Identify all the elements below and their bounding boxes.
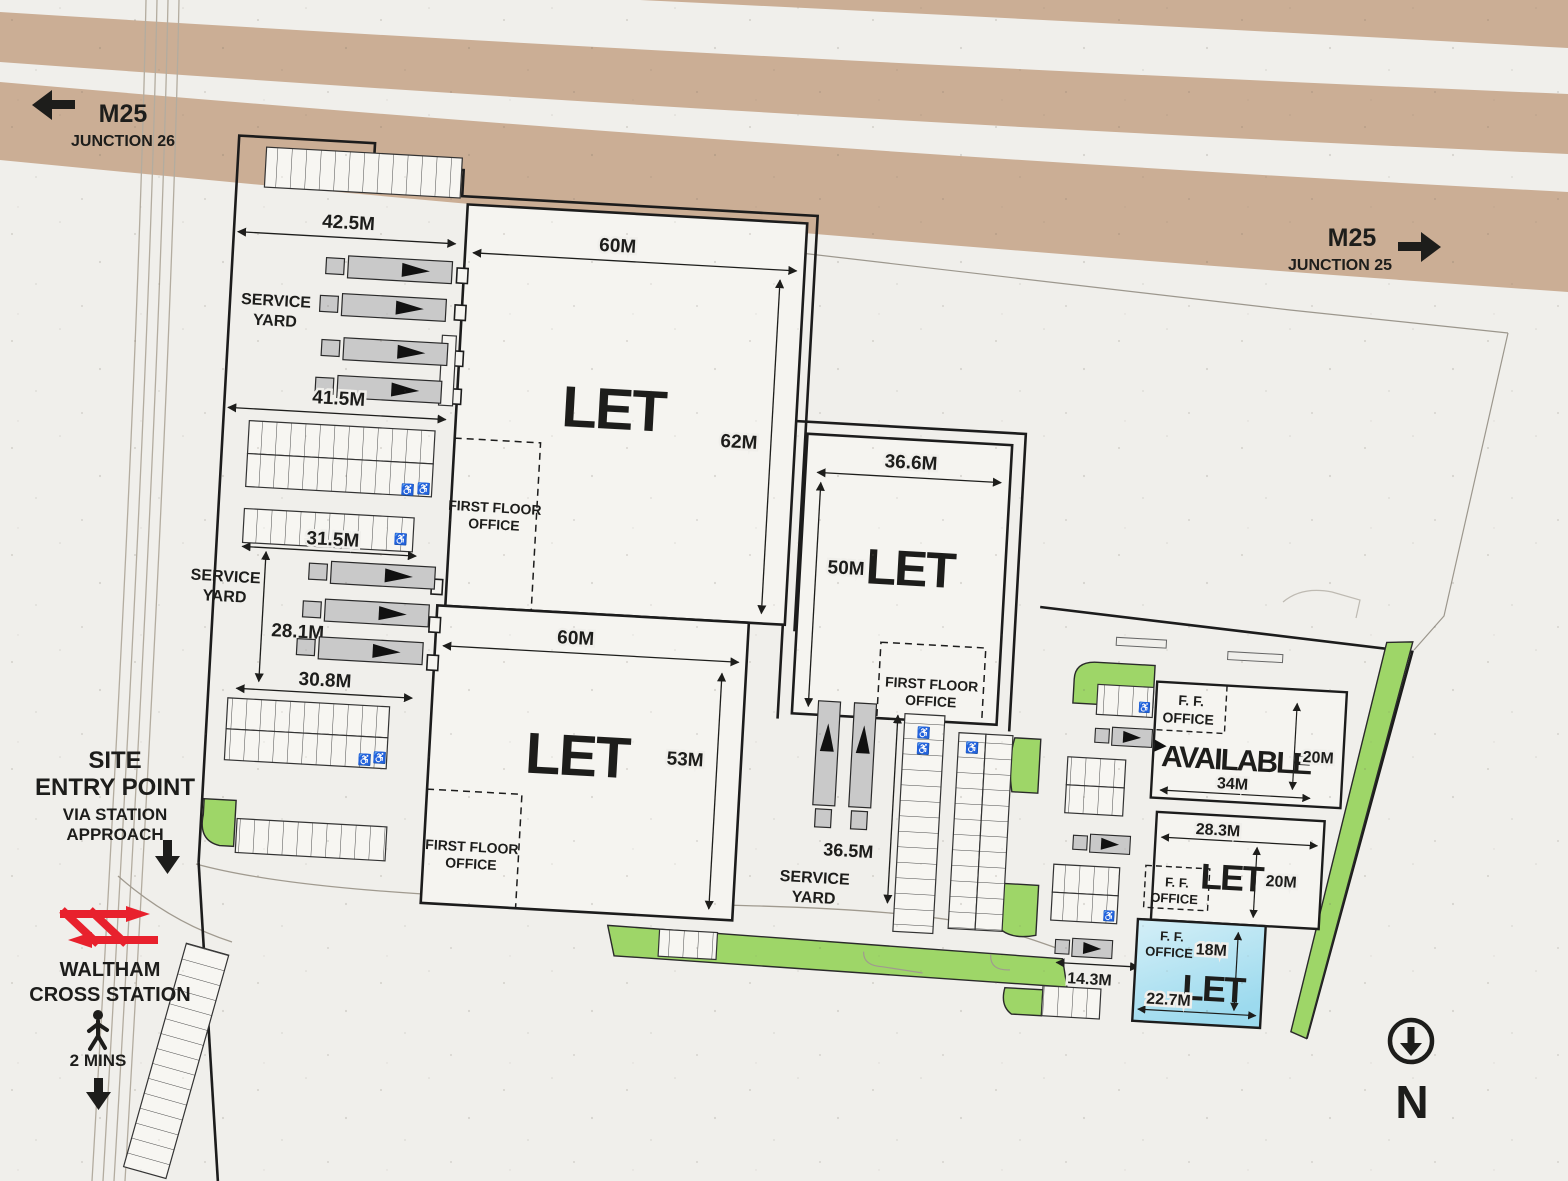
site-plan: FIRST FLOOR OFFICE LET 60M 62M FIRST FLO… [0, 0, 1568, 1181]
paper-texture [0, 0, 1568, 1181]
